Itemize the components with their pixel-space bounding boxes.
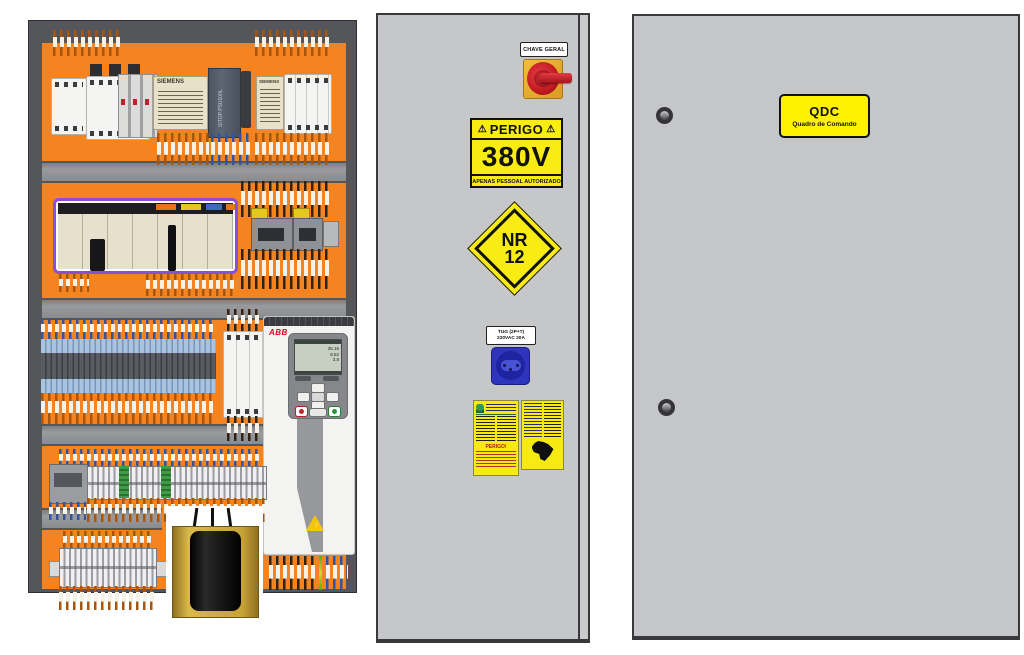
ground-terminal [161,466,171,498]
qdc-subtitle: Quadro de Comando [792,121,856,128]
transformer-core [172,526,259,618]
transformer-area [166,506,263,618]
danger-380v-label: ⚠ PERIGO ⚠ 380V APENAS PESSOAL AUTORIZAD… [470,118,563,188]
siemens-breaker: SIEMENS [256,76,284,130]
door-edge-strip [580,15,588,639]
abb-vfd-drive: ABB 35.16 8.52 3.8 [263,316,355,555]
contactor [293,218,323,251]
door-lock[interactable] [658,399,675,416]
abb-logo: ABB [269,328,288,337]
wire-bundle [53,30,123,56]
vfd-stop-button[interactable] [295,406,308,417]
danger-subtitle: APENAS PESSOAL AUTORIZADO [472,174,561,188]
socket-label: TUG (2P+T) 220VAC 20A [486,326,536,345]
wire-bundle [157,133,209,165]
siemens-logo: SIEMENS [154,77,207,85]
plc-connector-slot [168,225,176,271]
nr12-line1: NR [502,232,528,249]
nameplate-warning: PERIGO! [476,444,516,450]
nameplate-text-column [524,403,542,437]
wire-bundle [255,133,329,165]
relay-sockets [41,339,216,353]
vfd-control-panel: 35.16 8.52 3.8 [288,333,348,419]
wire-bundle [59,274,89,292]
relay-module [49,464,88,504]
vfd-softkey-right[interactable] [323,376,339,381]
wire-bundle [49,502,86,520]
terminal-block-row [87,466,267,500]
contactor-window [258,228,284,241]
danger-title: PERIGO [490,122,544,137]
sitop-power-supply: SITOP PSU100L [208,68,241,138]
wire-bundle [227,416,259,441]
plc-module-label [156,204,176,210]
vfd-lcd: 35.16 8.52 3.8 [294,339,342,375]
vfd-power-wires [326,556,348,590]
transformer-lead [211,508,214,528]
module-window [54,473,82,487]
specs-nameplate [521,400,564,470]
nr12-line2: 12 [504,249,524,266]
sitop-label: SITOP PSU100L [218,67,224,127]
wire-bundle [63,531,153,548]
logo-text-lines [486,404,516,412]
slim-relay-module [241,71,251,128]
socket-label-line2: 220VAC 20A [497,336,525,342]
nameplate-text-lines [260,89,280,125]
nameplate-warning-lines [476,451,516,467]
contactor-window [299,228,316,241]
vfd-power-wires [269,556,315,590]
main-switch-label: CHAVE GERAL [520,42,568,57]
interface-relay-bank [41,319,216,424]
stop-icon [299,409,304,414]
ground-wire [319,556,322,590]
open-electrical-panel: SIEMENS SITOP PSU100L SIEMENS [28,20,357,593]
lcd-footer [295,371,341,374]
ground-terminal [119,466,129,498]
main-disconnect-switch[interactable] [523,59,563,99]
relay-bodies [41,353,216,379]
wire-bundle [59,586,155,610]
brazil-map-icon [532,441,554,461]
socket-hole [503,364,506,367]
door-lock[interactable] [656,107,673,124]
nameplate-text-column [497,416,516,442]
warning-icon: ⚠ [478,124,487,135]
siemens-soft-starter: SIEMENS [153,76,208,130]
relay-wires-top [41,319,216,339]
lcd-header [295,340,341,344]
relay-wires-bottom [41,393,216,424]
surge-indicator-windows [121,99,155,105]
terminal-block-row [59,548,157,588]
switch-handle[interactable] [540,73,572,83]
wire-bundle [255,30,329,56]
vfd-vent [264,317,354,326]
wire-bundle [227,309,259,331]
lightning-icon: ⚡ [312,521,322,530]
relay-sockets [41,379,216,393]
socket-hole [509,368,512,371]
vfd-locrem-button[interactable] [309,408,327,417]
qdc-label: QDC Quadro de Comando [779,94,870,138]
nameplate-text-column [544,403,562,437]
qdc-title: QDC [809,104,839,119]
socket-hole [516,364,519,367]
three-pole-breaker [223,331,265,418]
logo-tree-icon [476,404,484,413]
plc-module-label [181,204,201,210]
plc-rack [53,198,238,274]
panel-door-front: CHAVE GERAL ⚠ PERIGO ⚠ 380V APENAS PESSO… [376,13,590,643]
vfd-start-button[interactable] [328,406,341,417]
plc-modules [58,203,233,269]
contactor [251,218,293,251]
wire-bundle [146,274,236,296]
transformer-coil [190,531,241,611]
vfd-softkey-left[interactable] [295,376,311,381]
nameplate-text-lines [158,91,203,124]
power-socket[interactable] [491,347,530,385]
wire-bundle [59,449,259,466]
surge-protector-modules [118,74,158,138]
closed-cabinet-door: QDC Quadro de Comando [632,14,1020,640]
vfd-right-button[interactable] [326,392,339,402]
vfd-left-button[interactable] [297,392,310,402]
plc-cpu-port [90,239,105,271]
circuit-breaker [51,78,87,135]
wire-bundle [241,249,329,289]
warning-icon: ⚠ [546,124,555,135]
wire-bundle [211,133,251,165]
lcd-value: 3.8 [295,357,339,363]
start-icon [332,409,337,414]
plc-module-label [206,204,222,210]
din-end-clamp [323,221,339,247]
nameplate-text-column [476,416,495,442]
manufacturer-nameplate: PERIGO! [473,400,519,476]
mcb-group [284,74,332,134]
nr12-diamond-sign: NR 12 [467,201,562,296]
voltage-text: 380V [472,138,561,174]
siemens-logo: SIEMENS [257,77,283,84]
plc-module-label [226,204,235,210]
